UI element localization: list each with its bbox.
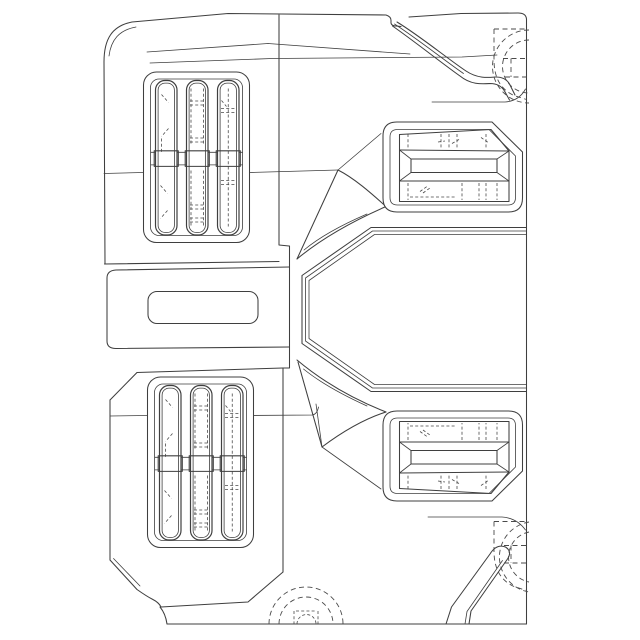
patent-drawing-canvas [0,0,640,640]
lamp-slat [187,81,209,236]
lamp-slat [191,386,213,541]
lower-lamp-cluster [148,377,254,548]
lower-wheel-broken-lines [494,522,529,593]
panel-seam [279,15,289,246]
lamp-clusters [144,72,254,548]
patent-drawing-page [0,0,640,640]
step-pocket [383,122,523,212]
upper-sail-panel [297,134,386,260]
middle-band [107,267,290,349]
blank-plate [148,292,258,324]
lower-step-pocket [383,411,523,501]
lower-right-trim-band [428,517,526,624]
lower-sail-panel [297,360,386,489]
bottom-arch-broken-lines [269,587,343,624]
center-cargo-opening [302,228,527,392]
upper-lamp-cluster [144,72,250,243]
